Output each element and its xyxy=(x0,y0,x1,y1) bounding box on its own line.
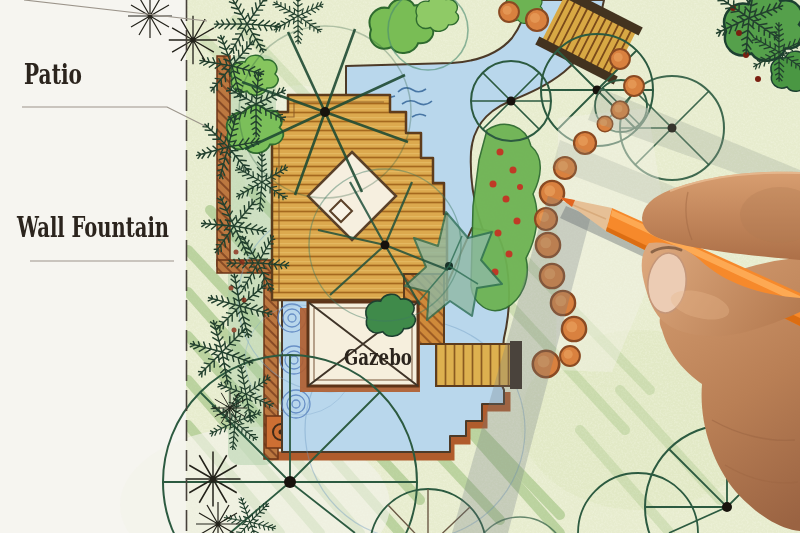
gazebo-label: Gazebo xyxy=(344,344,412,370)
landscape-plan-photo: Gazebo xyxy=(0,0,800,533)
plan-drawing: Gazebo xyxy=(0,0,800,533)
stepping-stone xyxy=(560,346,580,366)
stepping-stone xyxy=(624,76,644,96)
wall-fountain-label: Wall Fountain xyxy=(16,211,169,244)
stepping-stone xyxy=(499,2,519,22)
stepping-stone xyxy=(526,9,548,31)
stepping-stone xyxy=(610,49,630,69)
stepping-stone xyxy=(562,317,586,341)
patio-label: Patio xyxy=(24,58,82,91)
